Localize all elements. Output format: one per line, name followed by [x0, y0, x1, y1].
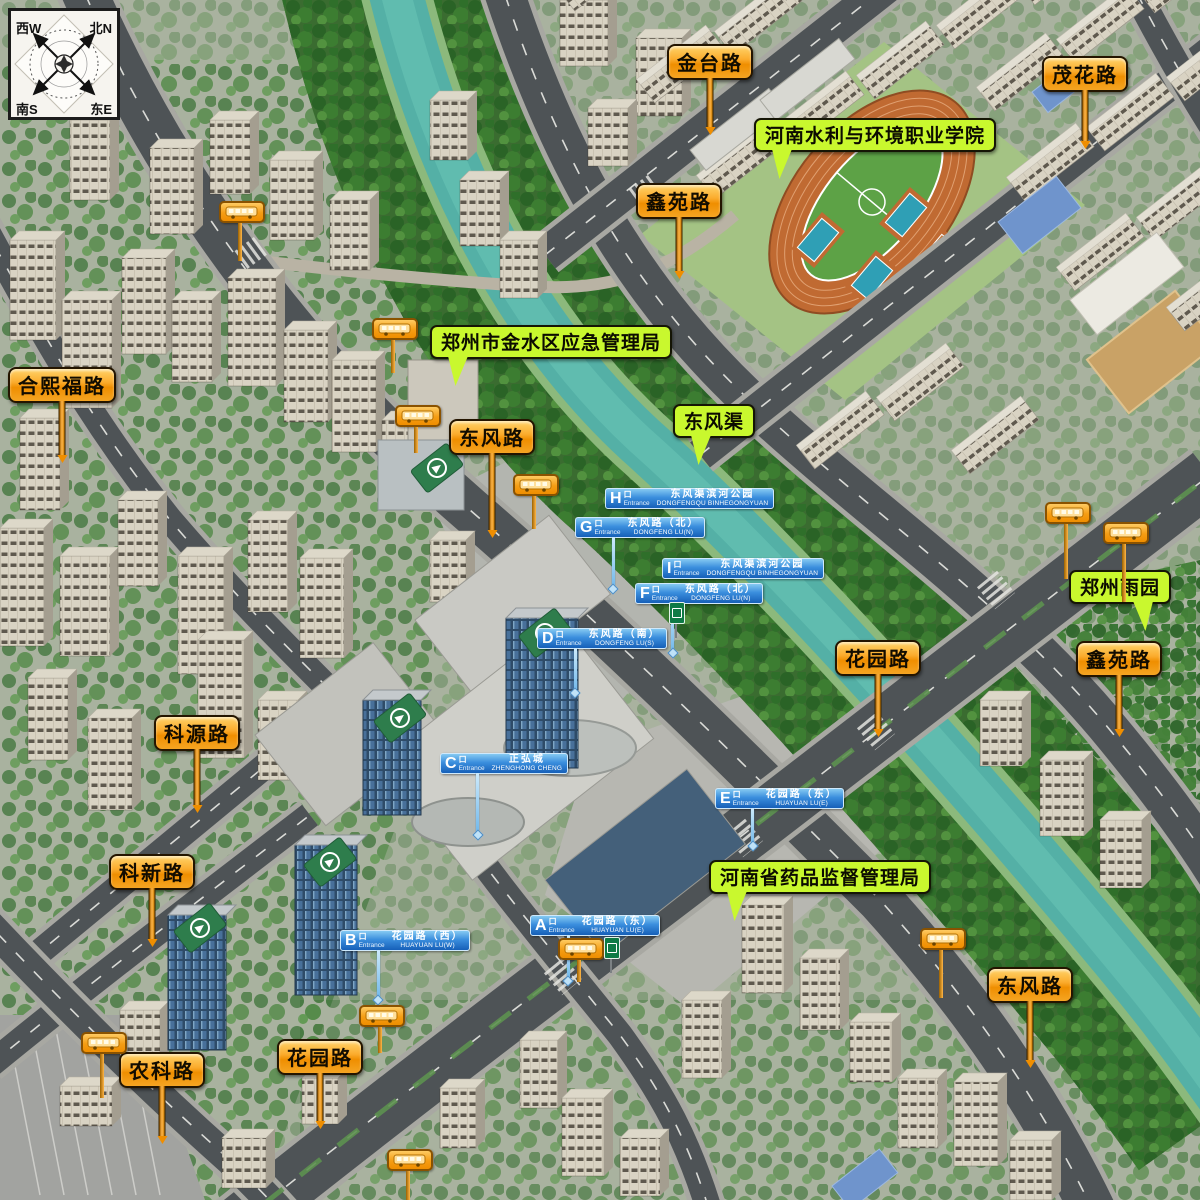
entrance-label-B[interactable]: B口Entrance花园路（西）HUAYUAN LU(W) — [340, 930, 470, 951]
entrance-word: Entrance — [359, 942, 385, 950]
road-label-4: 合熙福路 — [8, 367, 116, 403]
entrance-name-cn: 东风路（北） — [685, 585, 757, 595]
entrance-kou: 口 — [549, 917, 575, 926]
road-label-8: 鑫苑路 — [1076, 641, 1162, 677]
entrance-label-H[interactable]: H口Entrance东风渠滨河公园DONGFENGQU BINHEGONGYUA… — [605, 488, 774, 509]
entrance-name-en: DONGFENG LU(S) — [595, 640, 654, 648]
road-label-2: 茂花路 — [1042, 56, 1128, 92]
road-label-10: 农科路 — [119, 1052, 205, 1088]
entrance-word: Entrance — [594, 529, 620, 537]
entrance-kou: 口 — [733, 790, 759, 799]
entrance-letter: A — [535, 916, 547, 935]
facility-label-5: 河南省药品监督管理局 — [709, 860, 931, 894]
entrance-kou: 口 — [652, 585, 678, 594]
entrance-word: Entrance — [733, 800, 759, 808]
metro-station-icon[interactable] — [604, 937, 618, 973]
entrance-word: Entrance — [549, 927, 575, 935]
metro-station-icon[interactable] — [669, 602, 683, 638]
entrance-label-A[interactable]: A口Entrance花园路（东）HUAYUAN LU(E) — [530, 915, 660, 936]
entrance-name-cn: 东风渠滨河公园 — [670, 490, 754, 500]
entrance-word: Entrance — [673, 570, 699, 578]
entrance-pointer — [377, 950, 380, 1000]
bus-icon — [365, 1010, 399, 1023]
bus-stop-icon[interactable] — [920, 928, 962, 998]
entrance-label-I[interactable]: I口Entrance东风渠滨河公园DONGFENGQU BINHEGONGYUA… — [662, 558, 824, 579]
road-label-7: 花园路 — [835, 640, 921, 676]
bus-icon — [378, 323, 412, 336]
road-label-6: 科源路 — [154, 715, 240, 751]
road-label-pointer — [149, 888, 156, 940]
road-label-pointer — [707, 78, 714, 128]
bus-stop-icon[interactable] — [513, 474, 555, 529]
compass-label-north: 北N — [90, 21, 112, 36]
entrance-name-en: ZHENGHONG CHENG — [492, 765, 563, 773]
road-label-pointer — [1082, 90, 1089, 142]
entrance-letter: E — [720, 789, 731, 808]
bus-icon — [393, 1154, 427, 1167]
facility-label-pointer — [727, 891, 754, 921]
entrance-letter: H — [610, 489, 622, 508]
road-label-pointer — [159, 1086, 166, 1137]
facility-label-3: 东风渠 — [673, 404, 755, 438]
entrance-pointer — [476, 773, 479, 835]
bus-icon — [1109, 527, 1143, 540]
entrance-letter: C — [445, 754, 457, 773]
entrance-pointer — [751, 808, 754, 846]
road-label-1: 金台路 — [667, 44, 753, 80]
road-label-pointer — [676, 217, 683, 272]
entrance-letter: D — [542, 629, 554, 648]
bus-icon — [87, 1037, 121, 1050]
entrance-name-en: DONGFENG LU(N) — [691, 595, 751, 603]
entrance-name-cn: 花园路（东） — [582, 917, 654, 927]
facility-label-pointer — [772, 149, 799, 179]
road-label-3: 鑫苑路 — [636, 183, 722, 219]
road-label-pointer — [489, 453, 496, 531]
entrance-name-en: DONGFENGQU BINHEGONGYUAN — [706, 570, 818, 578]
entrance-name-cn: 东风路（南） — [589, 630, 661, 640]
bus-icon — [926, 933, 960, 946]
compass-label-west: 西W — [16, 21, 42, 36]
road-label-pointer — [194, 749, 201, 806]
entrance-pointer — [574, 648, 577, 693]
entrance-letter: I — [667, 559, 671, 578]
bus-stop-icon[interactable] — [219, 201, 261, 261]
road-label-pointer — [1027, 1001, 1034, 1061]
entrance-label-D[interactable]: D口Entrance东风路（南）DONGFENG LU(S) — [537, 628, 667, 649]
bus-icon — [1051, 507, 1085, 520]
entrance-name-cn: 正弘城 — [509, 755, 545, 765]
entrance-name-cn: 花园路（西） — [392, 932, 464, 942]
entrance-label-G[interactable]: G口Entrance东风路（北）DONGFENG LU(N) — [575, 517, 705, 538]
road-label-12: 东风路 — [987, 967, 1073, 1003]
road-label-11: 花园路 — [277, 1039, 363, 1075]
facility-label-pointer — [448, 356, 475, 386]
bus-icon — [564, 943, 598, 956]
entrance-name-en: DONGFENG LU(N) — [634, 529, 694, 537]
entrance-kou: 口 — [359, 932, 385, 941]
bus-stop-icon[interactable] — [372, 318, 414, 373]
entrance-word: Entrance — [459, 765, 485, 773]
bus-stop-icon[interactable] — [359, 1005, 401, 1053]
facility-label-pointer — [691, 435, 718, 465]
entrance-label-F[interactable]: F口Entrance东风路（北）DONGFENG LU(N) — [635, 583, 763, 604]
entrance-letter: B — [345, 931, 357, 950]
road-label-pointer — [875, 674, 882, 730]
entrance-name-cn: 东风路（北） — [627, 519, 699, 529]
compass-rose: 西W 北N 南S 东E — [8, 8, 120, 120]
bus-stop-icon[interactable] — [387, 1149, 429, 1200]
road-label-9: 科新路 — [109, 854, 195, 890]
facility-label-pointer — [1126, 601, 1153, 631]
road-label-pointer — [317, 1073, 324, 1122]
compass-label-east: 东E — [90, 102, 112, 117]
entrance-name-en: HUAYUAN LU(W) — [400, 942, 454, 950]
bus-stop-icon[interactable] — [395, 405, 437, 453]
entrance-label-C[interactable]: C口Entrance正弘城ZHENGHONG CHENG — [440, 753, 568, 774]
bus-icon — [401, 410, 435, 423]
bus-stop-icon[interactable] — [558, 938, 600, 982]
entrance-word: Entrance — [624, 500, 650, 508]
entrance-name-en: HUAYUAN LU(E) — [775, 800, 828, 808]
entrance-kou: 口 — [556, 630, 582, 639]
bus-icon — [225, 206, 259, 219]
entrance-label-E[interactable]: E口Entrance花园路（东）HUAYUAN LU(E) — [715, 788, 844, 809]
facility-label-1: 河南水利与环境职业学院 — [754, 118, 996, 152]
entrance-kou: 口 — [459, 755, 485, 764]
entrance-pointer — [612, 537, 615, 589]
road-label-pointer — [1116, 675, 1123, 730]
entrance-name-en: DONGFENGQU BINHEGONGYUAN — [657, 500, 769, 508]
entrance-kou: 口 — [673, 560, 699, 569]
bus-stop-icon[interactable] — [1103, 522, 1145, 602]
facility-label-2: 郑州市金水区应急管理局 — [430, 325, 672, 359]
bus-stop-icon[interactable] — [81, 1032, 123, 1098]
entrance-name-cn: 东风渠滨河公园 — [720, 560, 804, 570]
city-3d-map: 西W 北N 南S 东E 金台路茂花路鑫苑路合熙福路东风路科源路花园路鑫苑路科新路… — [0, 0, 1200, 1200]
bus-icon — [519, 479, 553, 492]
entrance-name-en: HUAYUAN LU(E) — [591, 927, 644, 935]
map-label-overlay: 金台路茂花路鑫苑路合熙福路东风路科源路花园路鑫苑路科新路农科路花园路东风路河南水… — [0, 0, 1200, 1200]
entrance-letter: F — [640, 584, 650, 603]
entrance-letter: G — [580, 518, 592, 537]
bus-stop-icon[interactable] — [1045, 502, 1087, 579]
compass-label-south: 南S — [16, 102, 38, 117]
entrance-name-cn: 花园路（东） — [766, 790, 838, 800]
entrance-word: Entrance — [556, 640, 582, 648]
road-label-5: 东风路 — [449, 419, 535, 455]
entrance-kou: 口 — [624, 490, 650, 499]
road-label-pointer — [59, 401, 66, 456]
entrance-kou: 口 — [594, 519, 620, 528]
